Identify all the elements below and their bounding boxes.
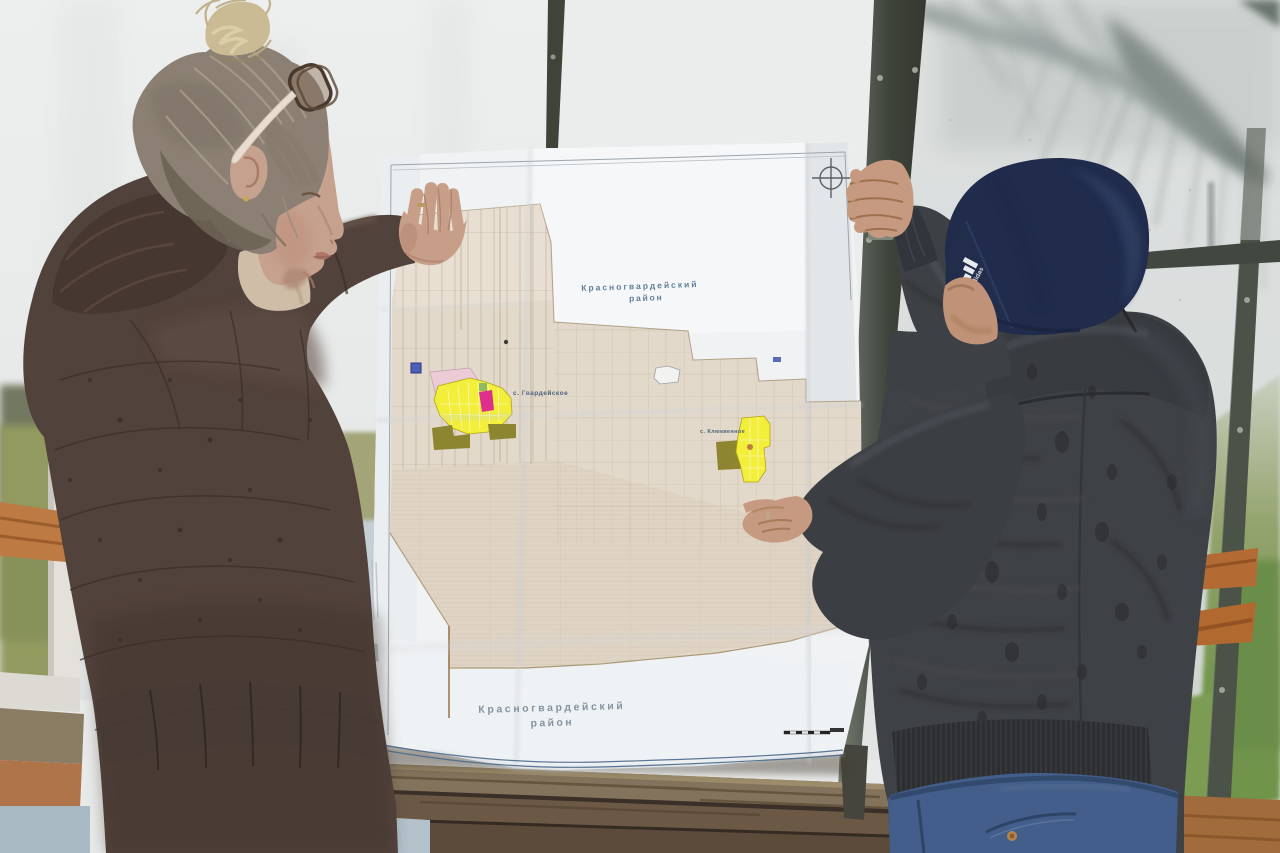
svg-text:с. Гвардейское: с. Гвардейское — [513, 389, 568, 397]
svg-text:район: район — [629, 292, 664, 303]
svg-text:район: район — [530, 716, 574, 729]
svg-text:с. Клюквенное: с. Клюквенное — [700, 429, 745, 435]
